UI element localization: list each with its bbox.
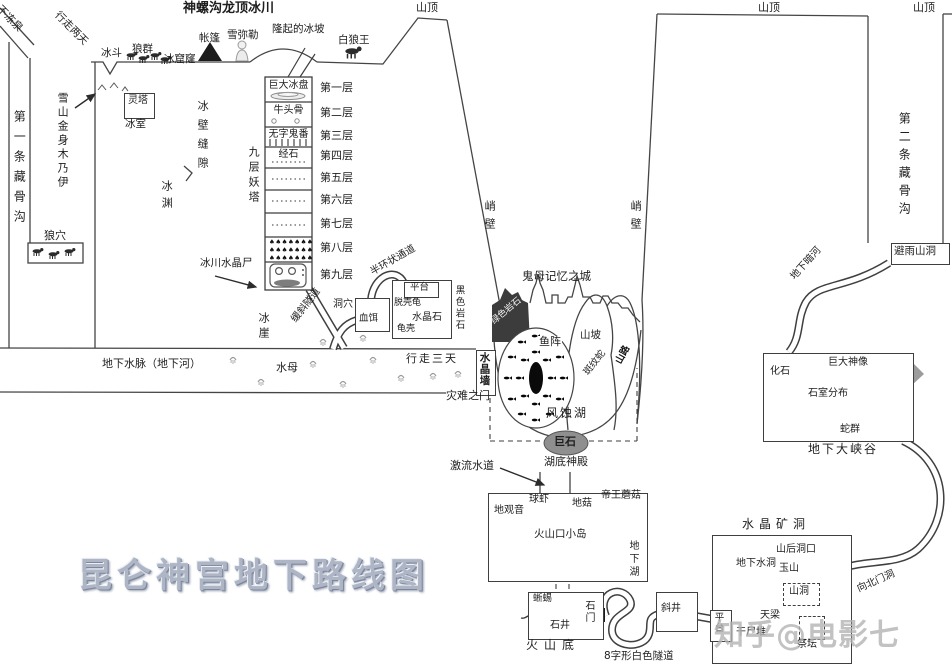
white-wolf-king-icon [345, 47, 361, 59]
label-giant-statue: 巨大神像 [828, 357, 868, 368]
label-crystal-stone: 水晶石 [412, 312, 442, 323]
label-back-cave-opening: 山后洞口 [776, 544, 816, 555]
label-wolf-pack: 狼群 [132, 44, 153, 56]
label-imperial-mushroom: 帝王蘑菇 [601, 490, 641, 501]
label-wolf-den: 狼穴 [44, 230, 66, 242]
label-mountain-cave: 山洞 [789, 586, 809, 597]
label-cliff-right: 峭壁 [629, 200, 641, 236]
label-inclined-shaft: 斜井 [661, 603, 681, 614]
label-wind-eroded-lake: 风蚀湖 [546, 407, 588, 420]
label-fossils: 化石 [770, 366, 790, 377]
label-ice-cliff: 冰崖 [257, 312, 269, 342]
label-blood-bait: 血饵 [359, 314, 378, 324]
label-crater-island: 火山口小岛 [534, 529, 587, 541]
bird-marks [98, 83, 128, 91]
label-stone-well: 石井 [550, 620, 570, 631]
label-spirit-stupa: 灵塔 [128, 95, 148, 106]
tent-icon [198, 42, 222, 61]
tower-floor2-content: 牛头骨 [266, 105, 311, 116]
label-first-bone-gully: 第一条藏骨沟 [12, 110, 25, 230]
tower-floor1-content: 巨大冰盘 [266, 80, 311, 91]
tower-floor2-label: 第二层 [320, 107, 353, 119]
label-snow-mountain-mummy: 雪山金身木乃伊 [56, 92, 68, 190]
label-rapids-channel: 激流水道 [450, 460, 494, 472]
label-cave: 洞穴 [333, 299, 353, 310]
label-raised-ice-slope: 隆起的冰坡 [272, 24, 325, 36]
label-ice-abyss: 冰渊 [160, 180, 172, 214]
label-grand-canyon: 地下大峡谷 [808, 443, 878, 456]
watermark: 知乎@电影七 [714, 610, 900, 654]
label-disaster-gate: 灾难之门 [446, 390, 490, 402]
label-stone-chambers: 石室分布 [808, 388, 848, 399]
label-walk-three-days: 行走三天 [406, 353, 458, 365]
map-title: 昆仑神宫地下路线图 [78, 548, 429, 597]
label-rain-shelter-cave: 避雨山洞 [894, 246, 936, 258]
label-ball-shrimp: 球虾 [529, 494, 549, 505]
tower-floor7-label: 第七层 [320, 218, 353, 230]
label-volcano-bottom: 火山底 [526, 639, 580, 652]
label-hillside: 山坡 [580, 330, 601, 342]
tower-skull-icon [270, 264, 306, 287]
map-canvas: 神螺沟龙顶冰川 不冻泉 行走两天 第一条藏骨沟 狼穴 冰斗 狼群 冰窟窿 帐篷 … [0, 0, 952, 672]
label-black-rocks: 黑色岩石 [453, 285, 463, 331]
arrows [75, 94, 868, 568]
label-nine-story-tower: 九层妖塔 [247, 146, 259, 206]
label-boulder: 巨石 [554, 436, 576, 448]
label-underground-lake: 地下湖 [627, 540, 638, 579]
tower-floor9-label: 第九层 [320, 269, 353, 281]
label-cliff-left: 峭壁 [483, 200, 495, 236]
tower-floor1-label: 第一层 [320, 82, 353, 94]
label-ice-wall-crack: 冰壁缝隙 [196, 100, 208, 176]
wolf-den-icons [33, 248, 44, 256]
label-crystal-wall: 水晶墙 [478, 352, 490, 387]
label-shell-shedding-turtle: 脱壳龟 [394, 299, 421, 309]
tower-floor4-content: 经石 [266, 149, 311, 160]
tower-floor5-label: 第五层 [320, 172, 353, 184]
label-summit-1: 山顶 [416, 2, 438, 14]
tower-floor8-label: 第八层 [320, 242, 353, 254]
label-ice-chamber: 冰室 [125, 119, 146, 131]
label-lizard: 蜥蜴 [533, 594, 552, 604]
label-ice-hole: 冰窟窿 [164, 54, 196, 66]
tower-floor4-label: 第四层 [320, 150, 353, 162]
label-summit-2: 山顶 [758, 2, 780, 14]
tower-floor6-label: 第六层 [320, 194, 353, 206]
label-underground-water-cave: 地下水洞 [736, 558, 776, 569]
label-lakebed-temple: 湖底神殿 [544, 456, 588, 468]
label-underground-river: 地下水脉（地下河） [102, 358, 201, 370]
tower-floor3-label: 第三层 [320, 130, 353, 142]
label-second-bone-gully: 第二条藏骨沟 [897, 112, 910, 220]
label-jade-mountain: 玉山 [779, 563, 799, 574]
label-tent: 帐篷 [199, 33, 220, 45]
label-snow-maitreya: 雪弥勒 [227, 30, 259, 42]
label-ground-mushroom: 地菇 [572, 498, 592, 509]
label-summit-3: 山顶 [913, 2, 935, 14]
tower-floor3-content: 无字鬼番 [266, 129, 311, 140]
label-ground-guanyin: 地观音 [494, 505, 524, 516]
label-fish-formation: 鱼阵 [538, 336, 562, 348]
label-ghost-mother-city: 鬼母记忆之城 [522, 270, 591, 283]
label-jellyfish: 水母 [276, 362, 298, 374]
tower-figures-row3: ♠♠♠♠♠♠♠ [269, 255, 313, 263]
label-cirque: 冰斗 [101, 48, 122, 60]
snow-buddha-icon [236, 41, 248, 61]
label-platform: 平台 [410, 283, 429, 293]
label-figure8-tunnel: 8字形白色隧道 [604, 651, 674, 663]
label-snake-swarm: 蛇群 [840, 424, 860, 435]
label-white-wolf-king: 白狼王 [338, 35, 370, 47]
label-stone-door: 石门 [583, 600, 594, 624]
label-crystal-mine: 水晶矿洞 [742, 518, 810, 531]
label-turtle-shell: 龟壳 [397, 325, 415, 335]
glacier-title: 神螺沟龙顶冰川 [183, 2, 274, 16]
label-glacier-crystal-corpse: 冰川水晶尸 [200, 258, 253, 270]
